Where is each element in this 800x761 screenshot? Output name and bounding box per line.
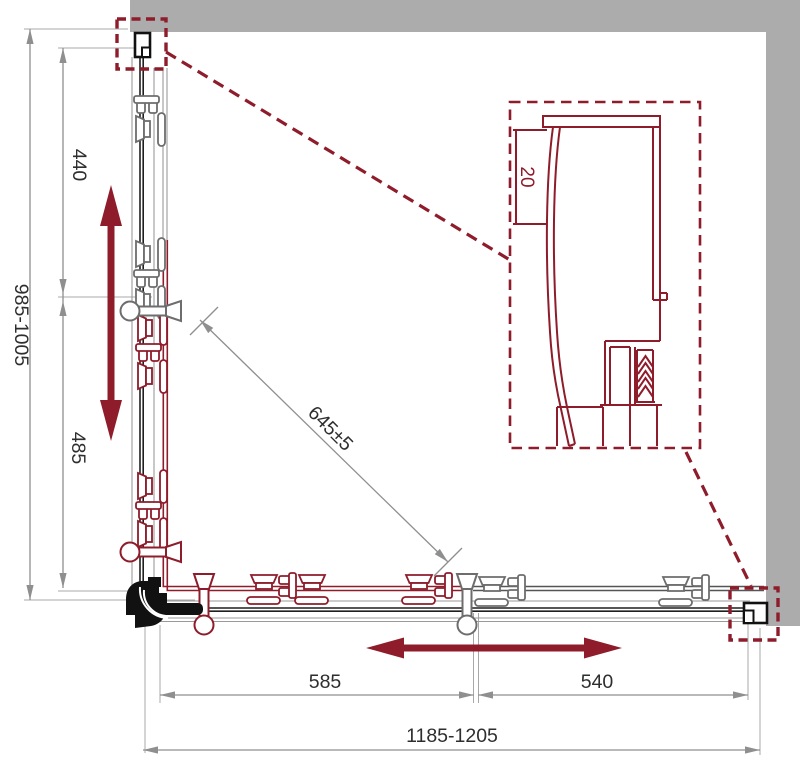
wall-top: [130, 0, 800, 32]
dim-detail-offset: 20: [516, 166, 537, 187]
door-knob-bottom-gray: [457, 574, 477, 635]
dim-depth-upper: 440: [68, 149, 90, 182]
roller-carrier-bottom-red2: [402, 573, 452, 604]
dim-width-overall: 1185-1205: [406, 725, 498, 747]
dim-width-right: 540: [581, 671, 614, 693]
movement-arrow-vertical: [100, 185, 122, 441]
dim-depth-lower: 485: [67, 432, 89, 465]
corner-bracket: [126, 577, 203, 628]
wall-profile-bottom-right: [744, 603, 767, 623]
installation-diagram: 985-1005 440 485 645±5 585 540 1185-1205…: [0, 0, 800, 761]
movement-arrow-horizontal: [366, 638, 622, 659]
dim-width-left: 585: [309, 671, 342, 693]
dimension-labels: 985-1005 440 485 645±5 585 540 1185-1205…: [10, 149, 613, 747]
detail-callouts: [117, 19, 778, 640]
roller-carrier-top: [134, 96, 165, 146]
door-knob-left-red: [121, 542, 182, 562]
dim-depth-overall: 985-1005: [10, 284, 32, 367]
wall-profile-top-left: [135, 33, 150, 57]
diagram-canvas: 985-1005 440 485 645±5 585 540 1185-1205…: [0, 0, 800, 761]
roller-carrier-bottom-red1: [247, 573, 328, 604]
wall-right: [766, 0, 800, 626]
roller-carrier-red-mid: [136, 312, 167, 393]
glass-panel-lines: [132, 57, 764, 622]
roller-carrier-red-lower: [136, 470, 167, 551]
